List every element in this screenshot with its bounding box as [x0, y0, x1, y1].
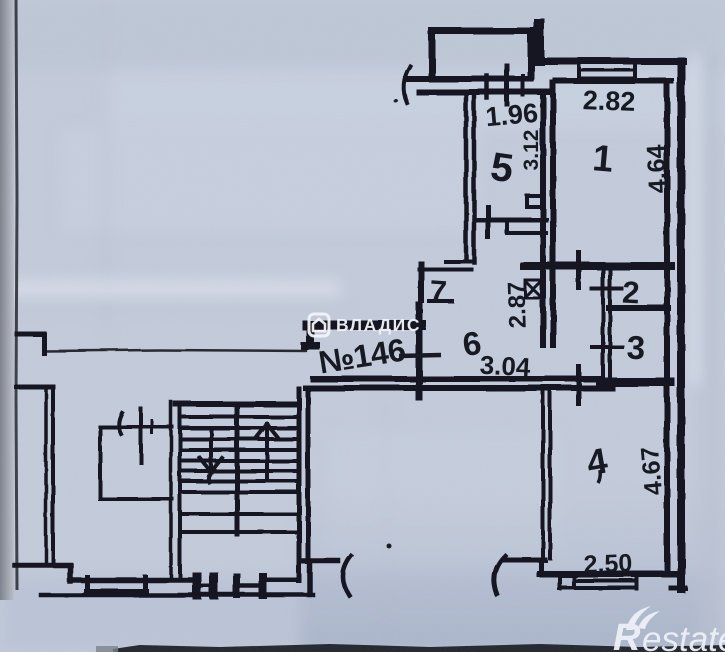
svg-text:4.67: 4.67: [636, 445, 668, 496]
svg-text:2.82: 2.82: [582, 85, 636, 117]
svg-text:1.96: 1.96: [484, 98, 539, 132]
svg-text:R: R: [613, 617, 641, 652]
svg-text:3.04: 3.04: [479, 350, 532, 383]
svg-text:1: 1: [591, 137, 615, 180]
svg-text:estate: estate: [642, 620, 725, 652]
svg-text:ВЛАДИС: ВЛАДИС: [336, 315, 421, 335]
svg-text:2: 2: [621, 275, 640, 311]
svg-text:3: 3: [626, 329, 646, 367]
svg-text:2.50: 2.50: [583, 549, 633, 579]
svg-text:3.12: 3.12: [520, 130, 543, 171]
svg-text:2.87: 2.87: [503, 281, 532, 329]
svg-text:4.64: 4.64: [642, 144, 673, 194]
svg-text:7: 7: [428, 273, 448, 309]
